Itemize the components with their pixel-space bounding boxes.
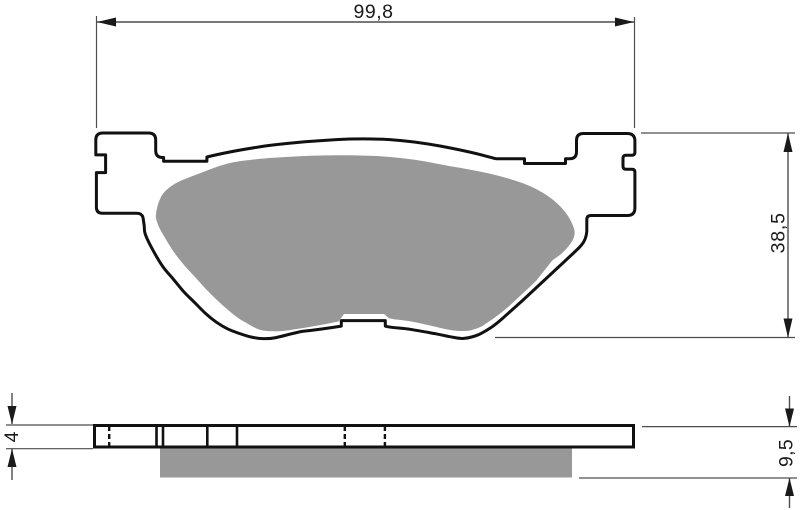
- svg-text:99,8: 99,8: [354, 1, 394, 23]
- svg-text:38,5: 38,5: [768, 212, 790, 253]
- svg-text:4: 4: [1, 431, 23, 442]
- svg-text:9,5: 9,5: [776, 439, 798, 467]
